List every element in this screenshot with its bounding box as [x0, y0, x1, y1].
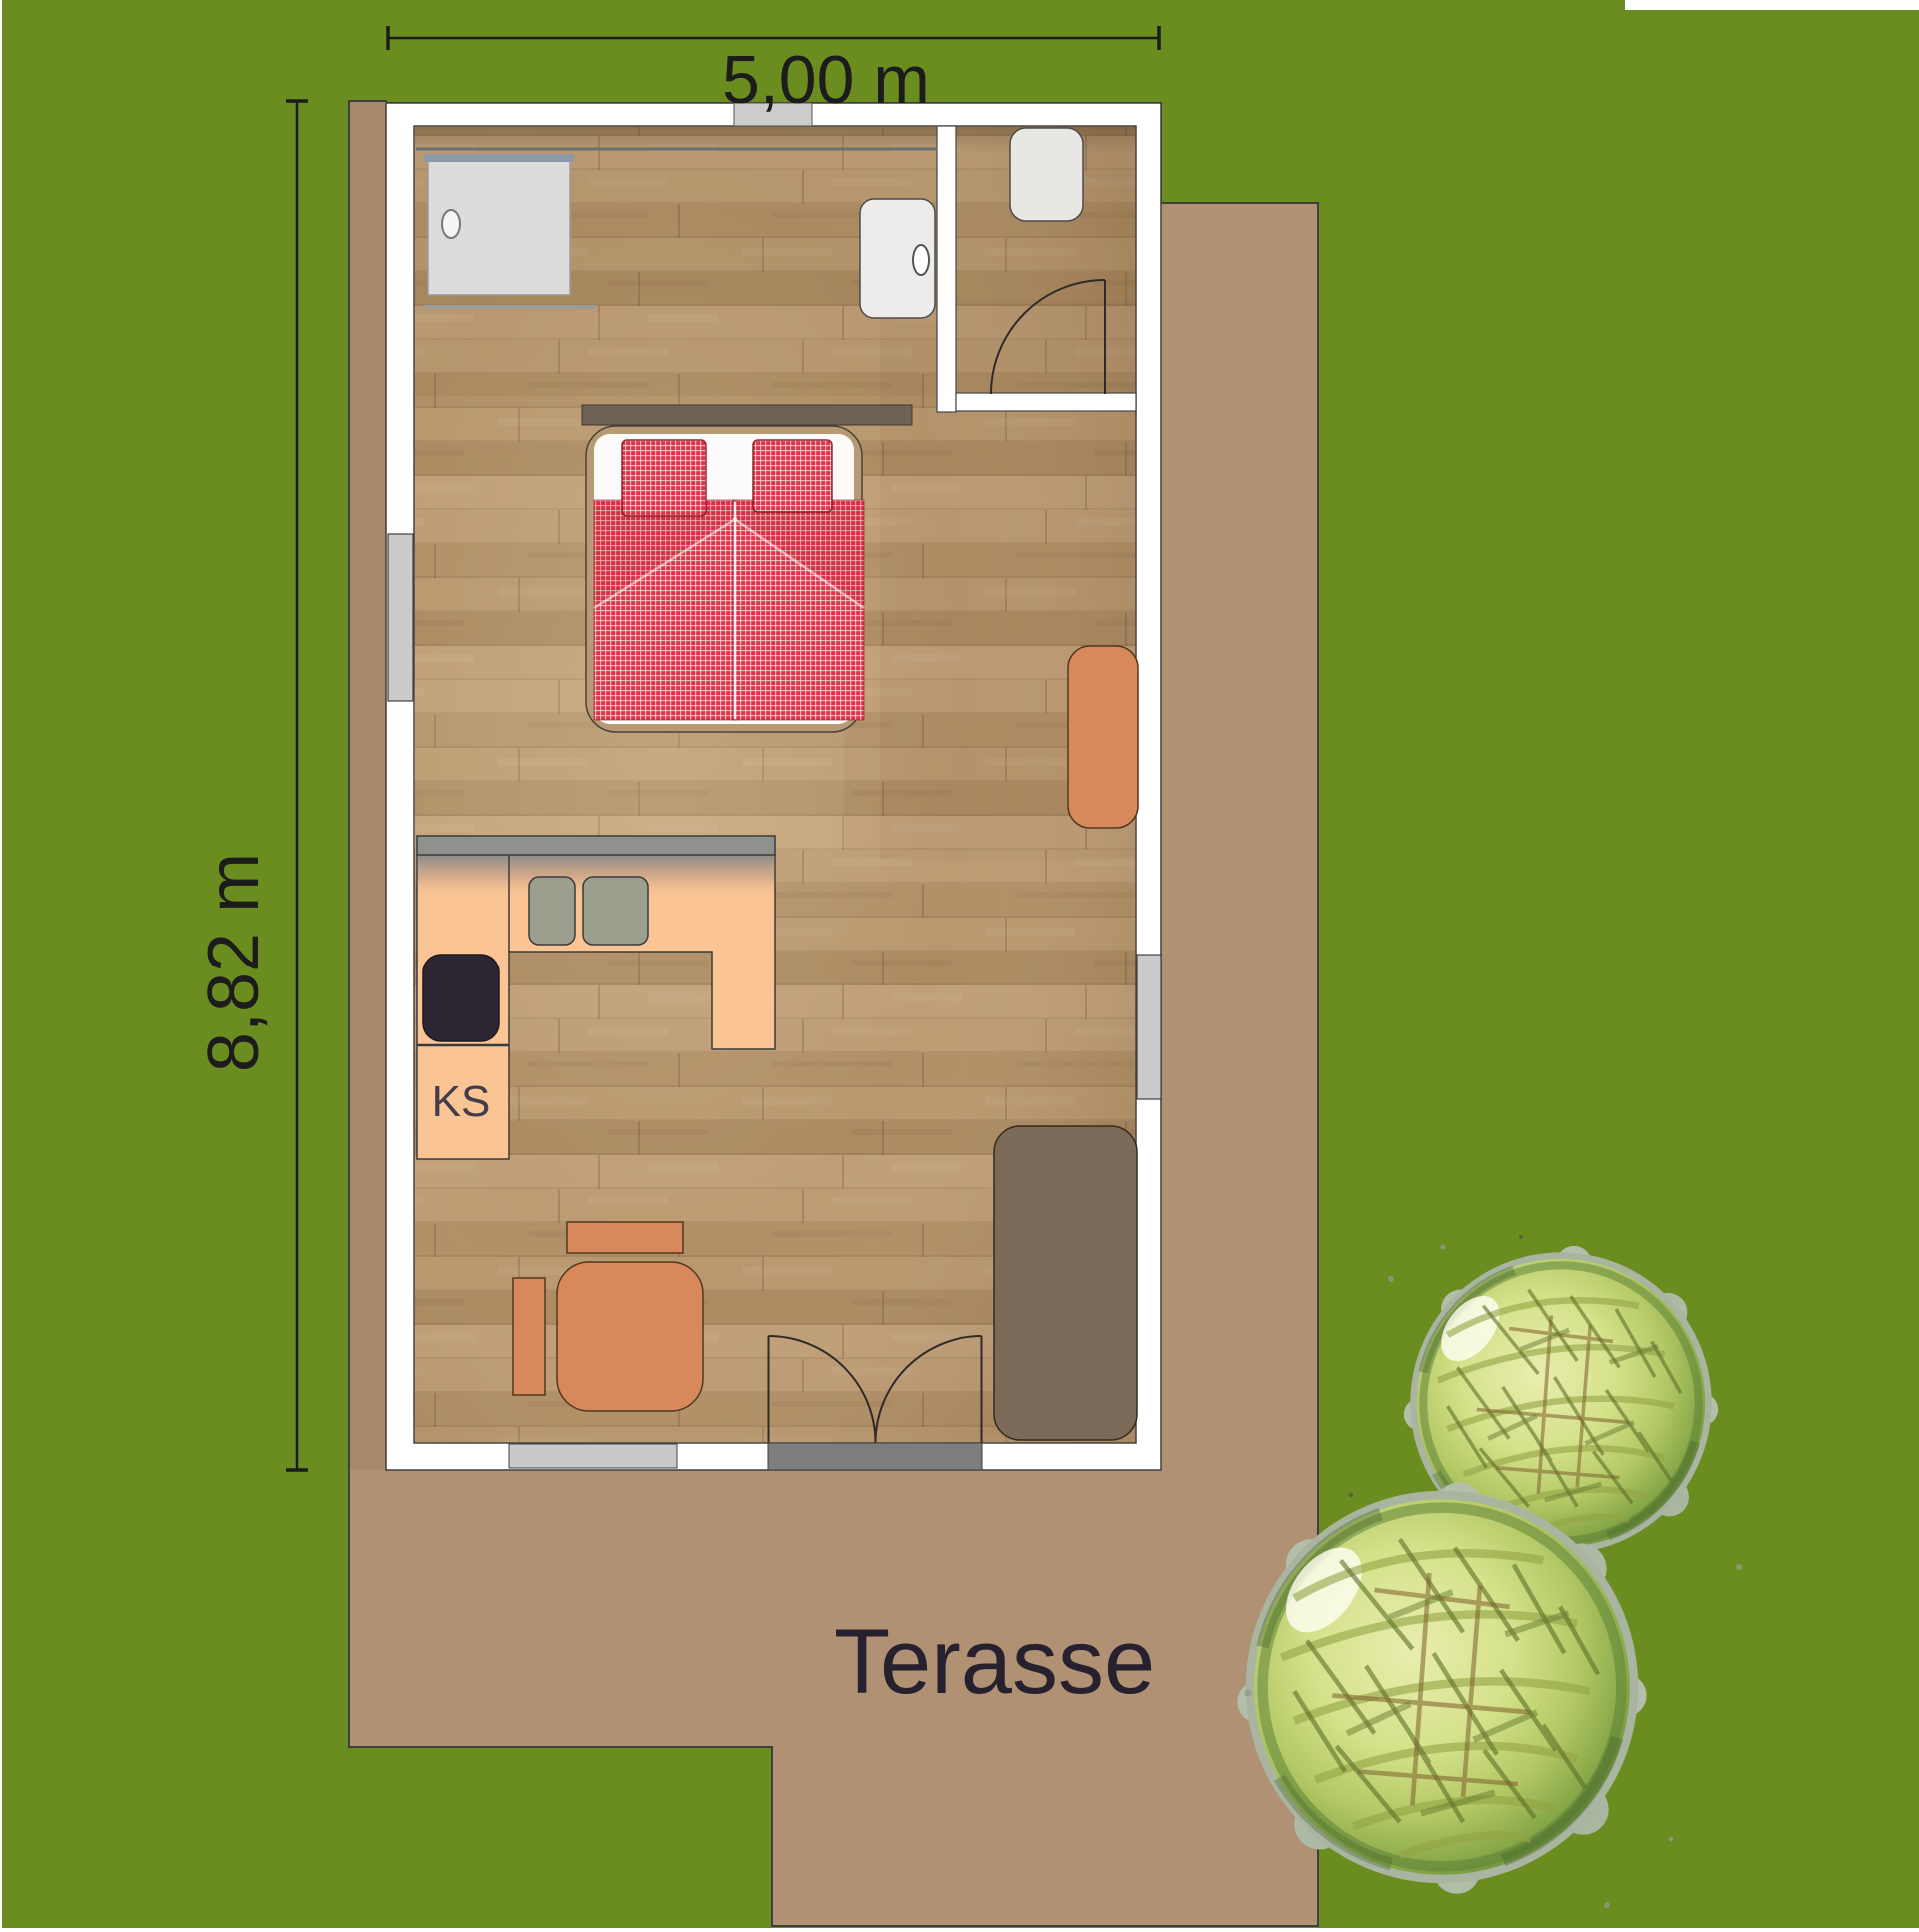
svg-text:Terasse: Terasse	[834, 1611, 1155, 1713]
svg-text:KS: KS	[432, 1077, 491, 1126]
svg-text:8,82 m: 8,82 m	[194, 853, 274, 1072]
svg-text:5,00 m: 5,00 m	[722, 42, 930, 118]
